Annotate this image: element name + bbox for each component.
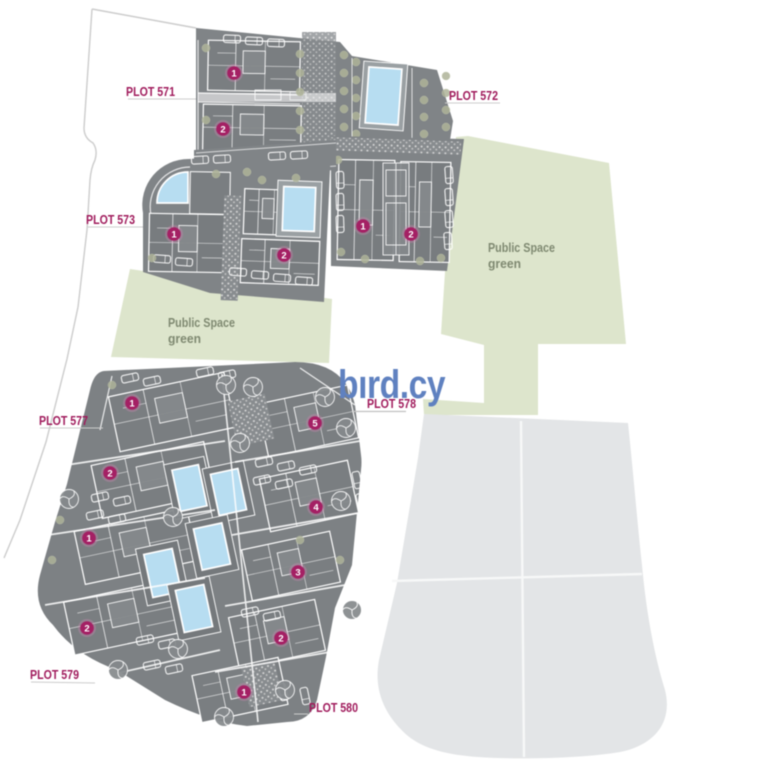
- svg-text:green: green: [488, 257, 521, 271]
- svg-text:bırd.cy: bırd.cy: [338, 362, 446, 406]
- svg-text:3: 3: [295, 567, 300, 578]
- svg-text:2: 2: [220, 124, 225, 135]
- svg-text:1: 1: [171, 229, 177, 240]
- svg-text:2: 2: [408, 229, 413, 240]
- svg-text:4: 4: [313, 502, 319, 513]
- svg-text:PLOT 579: PLOT 579: [30, 667, 79, 682]
- svg-text:PLOT 573: PLOT 573: [86, 212, 135, 227]
- svg-text:Public Space: Public Space: [168, 316, 235, 330]
- svg-text:5: 5: [312, 418, 318, 429]
- svg-text:1: 1: [86, 533, 92, 544]
- svg-text:1: 1: [360, 221, 366, 232]
- svg-text:1: 1: [241, 687, 247, 698]
- svg-text:Public Space: Public Space: [488, 241, 555, 255]
- svg-text:1: 1: [231, 68, 237, 79]
- svg-text:PLOT 580: PLOT 580: [309, 700, 358, 715]
- svg-text:2: 2: [278, 633, 283, 644]
- svg-text:2: 2: [84, 623, 89, 634]
- svg-text:2: 2: [107, 468, 112, 479]
- svg-text:PLOT 571: PLOT 571: [126, 84, 175, 99]
- svg-text:2: 2: [281, 250, 286, 261]
- svg-text:PLOT 577: PLOT 577: [39, 413, 88, 428]
- svg-text:PLOT 572: PLOT 572: [449, 88, 498, 103]
- svg-text:green: green: [168, 332, 201, 346]
- svg-text:1: 1: [129, 398, 135, 409]
